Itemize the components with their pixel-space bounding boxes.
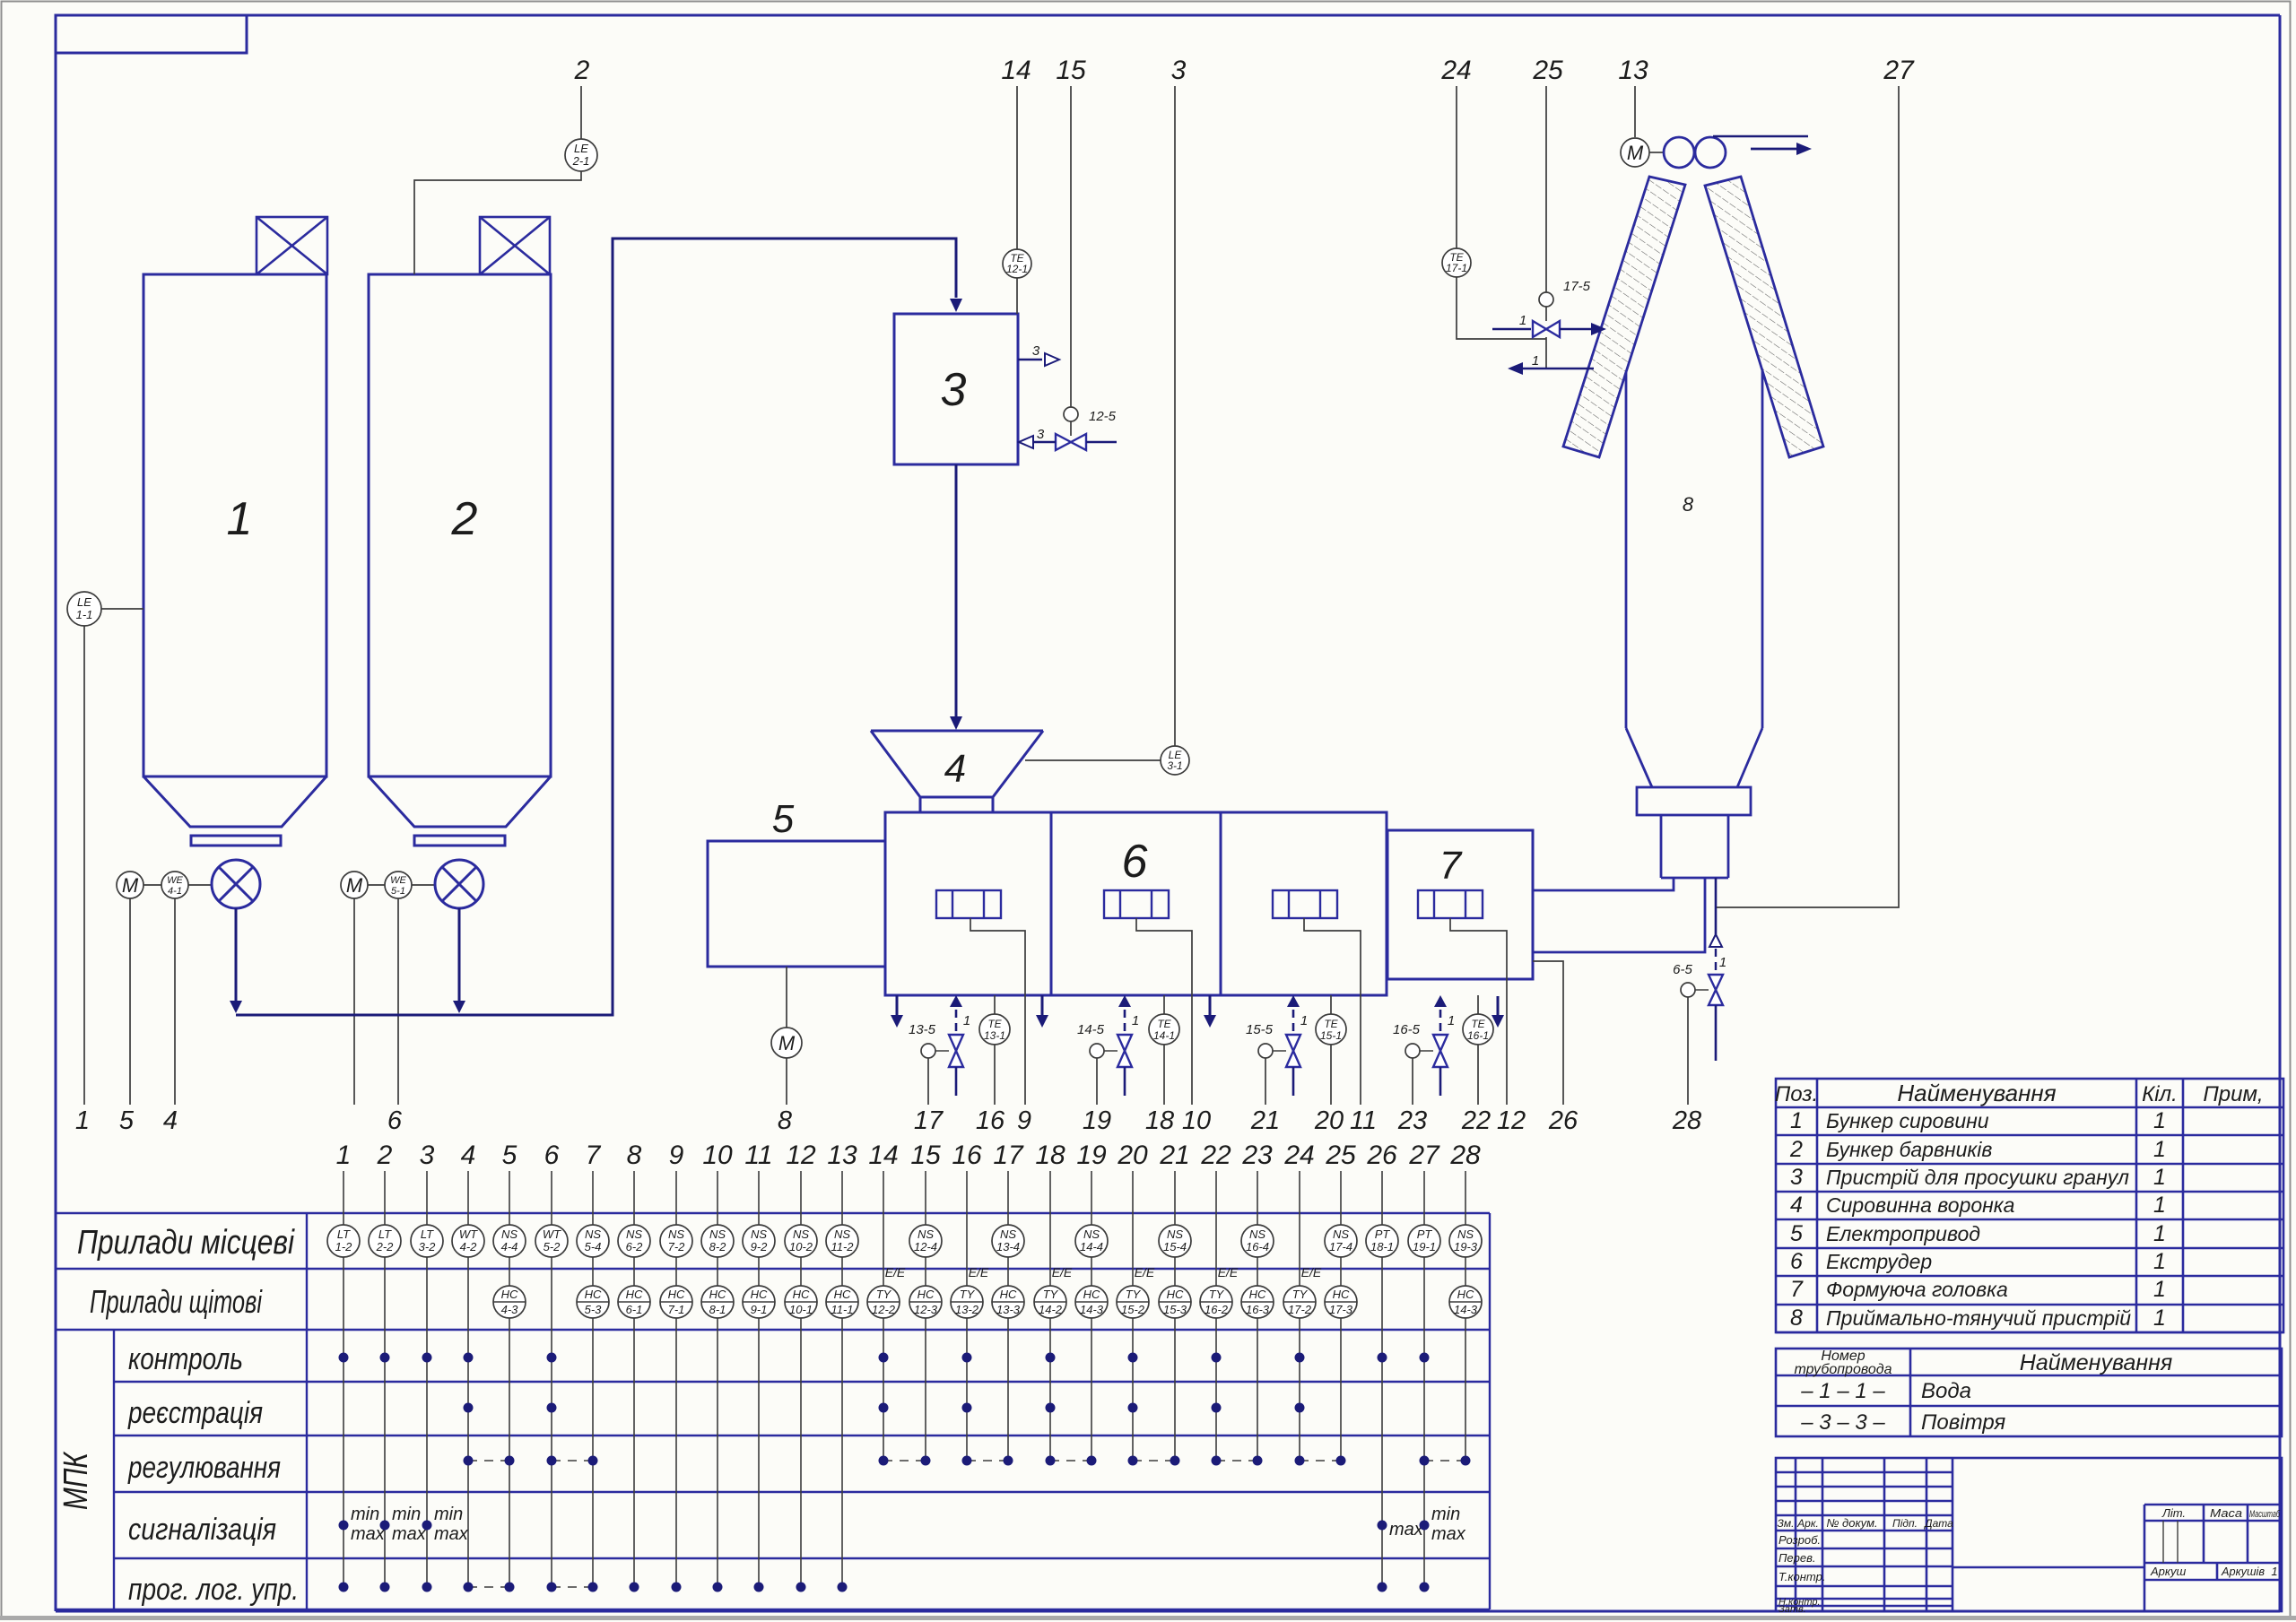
svg-text:15-2: 15-2: [1121, 1303, 1145, 1316]
svg-text:5: 5: [772, 797, 795, 841]
svg-text:6-5: 6-5: [1673, 962, 1692, 977]
svg-text:16-4: 16-4: [1246, 1240, 1269, 1253]
svg-text:NS: NS: [1167, 1227, 1183, 1241]
svg-text:Підп.: Підп.: [1892, 1517, 1918, 1530]
svg-text:TE: TE: [987, 1018, 1002, 1030]
svg-text:NS: NS: [709, 1227, 726, 1241]
svg-text:HC: HC: [1457, 1288, 1474, 1301]
svg-text:3-1: 3-1: [1167, 759, 1182, 772]
svg-text:19: 19: [1076, 1141, 1107, 1170]
svg-text:5: 5: [1790, 1221, 1803, 1246]
svg-text:7: 7: [1439, 844, 1463, 888]
svg-text:24: 24: [1440, 56, 1471, 85]
svg-text:17-5: 17-5: [1563, 279, 1591, 294]
svg-text:21: 21: [1250, 1106, 1280, 1135]
svg-text:4-1: 4-1: [168, 886, 182, 897]
svg-text:1: 1: [2153, 1249, 2166, 1274]
svg-text:7: 7: [1790, 1277, 1804, 1302]
svg-text:Зм.: Зм.: [1778, 1517, 1795, 1530]
svg-text:Вода: Вода: [1921, 1379, 1971, 1403]
svg-text:16-3: 16-3: [1246, 1303, 1270, 1316]
svg-text:2: 2: [451, 493, 478, 545]
svg-text:10-2: 10-2: [789, 1240, 813, 1253]
svg-text:16-1: 16-1: [1467, 1029, 1489, 1042]
svg-text:Приймально-тянучий пристрій: Приймально-тянучий пристрій: [1826, 1306, 2131, 1330]
svg-text:6-1: 6-1: [626, 1303, 643, 1316]
svg-text:NS: NS: [1457, 1227, 1474, 1241]
svg-text:PT: PT: [1417, 1227, 1433, 1241]
svg-text:NS: NS: [501, 1227, 517, 1241]
svg-text:8: 8: [778, 1106, 792, 1135]
svg-text:NS: NS: [668, 1227, 684, 1241]
svg-text:21: 21: [1159, 1141, 1189, 1170]
svg-text:1: 1: [1300, 1013, 1308, 1028]
svg-text:8: 8: [627, 1141, 642, 1170]
svg-text:Перев.: Перев.: [1779, 1551, 1816, 1565]
svg-text:TE: TE: [1471, 1018, 1485, 1030]
svg-text:WE: WE: [390, 875, 406, 886]
svg-text:4: 4: [1790, 1193, 1803, 1218]
svg-text:9: 9: [1017, 1106, 1031, 1135]
svg-text:13: 13: [827, 1141, 857, 1170]
svg-text:трубопровода: трубопровода: [1794, 1362, 1892, 1377]
svg-text:14: 14: [1001, 56, 1031, 85]
svg-text:1: 1: [2153, 1137, 2166, 1162]
svg-text:16-2: 16-2: [1205, 1303, 1229, 1316]
svg-text:M: M: [346, 874, 363, 897]
svg-text:6: 6: [387, 1106, 403, 1135]
svg-text:5: 5: [119, 1106, 135, 1135]
svg-text:M: M: [122, 874, 139, 897]
svg-text:3: 3: [420, 1141, 435, 1170]
svg-text:2-1: 2-1: [572, 154, 590, 168]
svg-text:HC: HC: [751, 1288, 768, 1301]
svg-text:3: 3: [941, 364, 967, 416]
svg-text:Прилади щітові: Прилади щітові: [90, 1283, 263, 1320]
svg-text:TY: TY: [1126, 1288, 1142, 1301]
svg-text:LT: LT: [337, 1227, 351, 1241]
svg-text:E/E: E/E: [1218, 1265, 1239, 1279]
svg-text:Електропривод: Електропривод: [1826, 1222, 1980, 1245]
svg-text:HC: HC: [1083, 1288, 1100, 1301]
svg-text:14-3: 14-3: [1454, 1303, 1478, 1316]
svg-text:HC: HC: [668, 1288, 685, 1301]
svg-text:NS: NS: [1083, 1227, 1100, 1241]
svg-text:4: 4: [461, 1141, 476, 1170]
svg-text:12-5: 12-5: [1089, 409, 1117, 424]
svg-text:1-1: 1-1: [76, 608, 93, 621]
svg-text:E/E: E/E: [1052, 1265, 1073, 1279]
svg-text:max: max: [351, 1524, 386, 1544]
svg-text:3: 3: [1032, 343, 1040, 359]
svg-text:TY: TY: [1292, 1288, 1309, 1301]
svg-text:3: 3: [1037, 427, 1045, 442]
svg-text:M: M: [1627, 142, 1644, 164]
svg-text:9: 9: [669, 1141, 684, 1170]
svg-text:2: 2: [1789, 1137, 1803, 1162]
svg-text:17-1: 17-1: [1446, 262, 1467, 274]
svg-text:10-1: 10-1: [789, 1303, 813, 1316]
svg-text:1: 1: [2153, 1277, 2166, 1302]
svg-text:25: 25: [1532, 56, 1563, 85]
svg-text:регулювання: регулювання: [127, 1451, 281, 1485]
svg-text:16-5: 16-5: [1393, 1022, 1421, 1037]
svg-text:12-3: 12-3: [914, 1303, 938, 1316]
svg-text:1: 1: [1532, 353, 1539, 369]
svg-text:2: 2: [377, 1141, 393, 1170]
svg-text:11-1: 11-1: [831, 1303, 853, 1316]
svg-text:Маса: Маса: [2210, 1506, 2242, 1520]
svg-text:19-1: 19-1: [1413, 1240, 1436, 1253]
svg-text:Літ.: Літ.: [2161, 1506, 2186, 1520]
svg-text:E/E: E/E: [1135, 1265, 1155, 1279]
svg-text:NS: NS: [834, 1227, 850, 1241]
svg-text:min: min: [434, 1505, 463, 1524]
svg-text:5-3: 5-3: [585, 1303, 603, 1316]
svg-text:max: max: [434, 1524, 469, 1544]
svg-text:7: 7: [586, 1141, 602, 1170]
svg-text:max: max: [1431, 1524, 1466, 1544]
svg-text:13-4: 13-4: [996, 1240, 1020, 1253]
svg-text:19: 19: [1083, 1106, 1111, 1135]
svg-text:26: 26: [1548, 1106, 1578, 1135]
svg-text:23: 23: [1397, 1106, 1427, 1135]
svg-text:HC: HC: [834, 1288, 851, 1301]
svg-text:1: 1: [2153, 1193, 2166, 1218]
svg-text:12: 12: [1497, 1106, 1526, 1135]
svg-text:17: 17: [993, 1141, 1024, 1170]
svg-text:5: 5: [502, 1141, 517, 1170]
svg-text:12-2: 12-2: [872, 1303, 896, 1316]
svg-text:3: 3: [1790, 1165, 1803, 1190]
svg-text:13-5: 13-5: [909, 1022, 936, 1037]
svg-text:17-2: 17-2: [1288, 1303, 1312, 1316]
svg-text:9-2: 9-2: [751, 1240, 769, 1253]
svg-text:Поз.: Поз.: [1775, 1082, 1818, 1106]
svg-text:1: 1: [1448, 1013, 1455, 1028]
svg-text:27: 27: [1883, 56, 1915, 85]
svg-text:4: 4: [163, 1106, 178, 1135]
svg-text:1: 1: [336, 1141, 352, 1170]
svg-text:Бункер барвників: Бункер барвників: [1826, 1138, 1992, 1161]
svg-text:Сировинна воронка: Сировинна воронка: [1826, 1193, 2014, 1217]
svg-text:реєстрація: реєстрація: [127, 1396, 263, 1430]
svg-text:Повітря: Повітря: [1921, 1410, 2005, 1435]
svg-text:18: 18: [1035, 1141, 1065, 1170]
svg-text:14: 14: [868, 1141, 898, 1170]
svg-text:22: 22: [1461, 1106, 1491, 1135]
svg-text:15-4: 15-4: [1163, 1240, 1187, 1253]
svg-text:20: 20: [1314, 1106, 1344, 1135]
svg-text:8: 8: [1790, 1305, 1803, 1331]
svg-text:min: min: [392, 1505, 421, 1524]
svg-text:HC: HC: [626, 1288, 643, 1301]
svg-text:13-2: 13-2: [955, 1303, 979, 1316]
svg-text:прог. лог. упр.: прог. лог. упр.: [128, 1573, 299, 1607]
svg-text:14-5: 14-5: [1077, 1022, 1105, 1037]
svg-text:14-4: 14-4: [1080, 1240, 1103, 1253]
svg-text:LT: LT: [421, 1227, 434, 1241]
svg-text:10: 10: [702, 1141, 733, 1170]
svg-text:NS: NS: [585, 1227, 601, 1241]
svg-text:11-2: 11-2: [831, 1240, 854, 1253]
svg-text:20: 20: [1117, 1141, 1148, 1170]
svg-text:TE: TE: [1324, 1018, 1338, 1030]
svg-text:Прилади місцеві: Прилади місцеві: [77, 1224, 295, 1262]
svg-text:4-3: 4-3: [501, 1303, 519, 1316]
svg-text:NS: NS: [1249, 1227, 1265, 1241]
svg-text:7-2: 7-2: [668, 1240, 686, 1253]
svg-text:HC: HC: [918, 1288, 935, 1301]
svg-text:2-2: 2-2: [376, 1240, 395, 1253]
svg-text:Аркуш: Аркуш: [2150, 1565, 2187, 1578]
svg-text:14-2: 14-2: [1039, 1303, 1063, 1316]
svg-text:NS: NS: [626, 1227, 642, 1241]
svg-text:22: 22: [1200, 1141, 1231, 1170]
svg-text:3-2: 3-2: [419, 1240, 437, 1253]
svg-text:WE: WE: [167, 875, 183, 886]
svg-text:8-2: 8-2: [709, 1240, 727, 1253]
svg-text:17-4: 17-4: [1329, 1240, 1352, 1253]
svg-text:28: 28: [1672, 1106, 1701, 1135]
svg-text:HC: HC: [1000, 1288, 1017, 1301]
svg-text:Пристрій для просушки гранул: Пристрій для просушки гранул: [1826, 1166, 2129, 1189]
svg-text:1: 1: [2153, 1305, 2166, 1331]
svg-text:23: 23: [1241, 1141, 1273, 1170]
svg-text:TY: TY: [876, 1288, 892, 1301]
svg-text:Екструдер: Екструдер: [1826, 1250, 1932, 1273]
svg-text:18-1: 18-1: [1370, 1240, 1394, 1253]
svg-text:Розроб.: Розроб.: [1779, 1533, 1821, 1547]
svg-text:1: 1: [1790, 1108, 1803, 1133]
svg-text:1: 1: [2271, 1565, 2277, 1578]
svg-text:PT: PT: [1375, 1227, 1391, 1241]
svg-text:1: 1: [2153, 1108, 2166, 1133]
svg-text:1: 1: [1719, 955, 1726, 970]
svg-text:8: 8: [1683, 493, 1694, 516]
svg-text:12-4: 12-4: [914, 1240, 937, 1253]
svg-text:NS: NS: [1000, 1227, 1016, 1241]
svg-text:HC: HC: [709, 1288, 726, 1301]
svg-text:LT: LT: [378, 1227, 392, 1241]
svg-text:TE: TE: [1157, 1018, 1171, 1030]
svg-text:1: 1: [963, 1013, 970, 1028]
svg-text:TY: TY: [1209, 1288, 1225, 1301]
svg-text:16: 16: [952, 1141, 982, 1170]
svg-text:LE: LE: [574, 142, 588, 155]
svg-text:12: 12: [786, 1141, 816, 1170]
svg-text:NS: NS: [793, 1227, 809, 1241]
svg-text:NS: NS: [751, 1227, 767, 1241]
svg-text:12-1: 12-1: [1006, 263, 1028, 275]
svg-text:Аркушів: Аркушів: [2221, 1565, 2265, 1578]
svg-text:11: 11: [744, 1141, 772, 1170]
svg-text:Т.контр.: Т.контр.: [1779, 1570, 1825, 1583]
svg-text:6: 6: [544, 1141, 560, 1170]
svg-text:27: 27: [1408, 1141, 1440, 1170]
svg-text:Найменування: Найменування: [2020, 1350, 2172, 1375]
svg-text:17: 17: [914, 1106, 944, 1135]
svg-text:Масштаб: Масштаб: [2249, 1509, 2281, 1520]
svg-text:МПК: МПК: [57, 1451, 95, 1510]
svg-text:15-1: 15-1: [1320, 1029, 1342, 1042]
svg-text:26: 26: [1366, 1141, 1397, 1170]
svg-text:18: 18: [1145, 1106, 1174, 1135]
svg-text:14-1: 14-1: [1153, 1029, 1175, 1042]
svg-text:HC: HC: [585, 1288, 602, 1301]
svg-text:Прим,: Прим,: [2203, 1082, 2263, 1106]
svg-text:24: 24: [1283, 1141, 1314, 1170]
svg-text:M: M: [778, 1032, 796, 1054]
svg-text:сигналізація: сигналізація: [128, 1513, 276, 1547]
svg-text:13-1: 13-1: [984, 1029, 1005, 1042]
svg-text:HC: HC: [1167, 1288, 1184, 1301]
svg-text:2: 2: [574, 56, 590, 85]
svg-text:– 1 – 1 –: – 1 – 1 –: [1800, 1379, 1885, 1403]
svg-text:6-2: 6-2: [626, 1240, 644, 1253]
svg-text:4-4: 4-4: [501, 1240, 518, 1253]
svg-text:16: 16: [976, 1106, 1005, 1135]
svg-text:max: max: [1389, 1520, 1424, 1540]
svg-text:28: 28: [1449, 1141, 1481, 1170]
svg-text:min: min: [351, 1505, 379, 1524]
svg-text:11: 11: [1350, 1106, 1377, 1135]
svg-text:6: 6: [1122, 836, 1148, 888]
svg-text:5-1: 5-1: [391, 886, 405, 897]
svg-text:Формуюча головка: Формуюча головка: [1826, 1278, 2008, 1301]
svg-text:5-2: 5-2: [544, 1240, 561, 1253]
svg-text:4-2: 4-2: [460, 1240, 478, 1253]
svg-text:1: 1: [227, 493, 253, 545]
svg-text:1: 1: [2153, 1221, 2166, 1246]
svg-text:14-3: 14-3: [1080, 1303, 1104, 1316]
svg-text:TY: TY: [960, 1288, 976, 1301]
svg-text:Кіл.: Кіл.: [2142, 1082, 2178, 1106]
svg-text:Найменування: Найменування: [1897, 1080, 2056, 1106]
svg-text:15-5: 15-5: [1246, 1022, 1274, 1037]
svg-text:Бункер сировини: Бункер сировини: [1826, 1109, 1989, 1132]
svg-text:контроль: контроль: [128, 1342, 243, 1376]
svg-text:1: 1: [75, 1106, 90, 1135]
svg-text:3: 3: [1171, 56, 1187, 85]
svg-text:1: 1: [1519, 313, 1526, 328]
svg-text:1: 1: [2153, 1165, 2166, 1190]
svg-text:15: 15: [910, 1141, 941, 1170]
svg-text:25: 25: [1325, 1141, 1356, 1170]
svg-text:E/E: E/E: [1301, 1265, 1322, 1279]
svg-text:min: min: [1431, 1505, 1460, 1524]
svg-text:HC: HC: [501, 1288, 518, 1301]
svg-text:19-3: 19-3: [1454, 1240, 1478, 1253]
svg-text:№ докум.: № докум.: [1826, 1516, 1877, 1530]
svg-text:WT: WT: [459, 1227, 478, 1241]
svg-text:1-2: 1-2: [335, 1240, 353, 1253]
svg-text:NS: NS: [918, 1227, 934, 1241]
svg-text:10: 10: [1182, 1106, 1211, 1135]
svg-text:WT: WT: [543, 1227, 561, 1241]
svg-text:9-1: 9-1: [751, 1303, 768, 1316]
svg-text:LE: LE: [77, 595, 91, 609]
svg-text:TY: TY: [1043, 1288, 1059, 1301]
svg-text:15: 15: [1056, 56, 1086, 85]
svg-text:6: 6: [1790, 1249, 1803, 1274]
svg-text:– 3 – 3 –: – 3 – 3 –: [1800, 1410, 1885, 1435]
svg-text:1: 1: [1132, 1013, 1139, 1028]
svg-text:HC: HC: [793, 1288, 810, 1301]
svg-text:13: 13: [1618, 56, 1648, 85]
svg-text:4: 4: [944, 747, 966, 791]
svg-text:Дата: Дата: [1923, 1517, 1953, 1530]
svg-text:E/E: E/E: [885, 1265, 906, 1279]
svg-text:15-3: 15-3: [1163, 1303, 1187, 1316]
svg-text:13-3: 13-3: [996, 1303, 1021, 1316]
svg-text:Арк.: Арк.: [1796, 1517, 1819, 1530]
svg-text:8-1: 8-1: [709, 1303, 726, 1316]
svg-text:17-3: 17-3: [1329, 1303, 1353, 1316]
svg-text:E/E: E/E: [969, 1265, 989, 1279]
svg-text:5-4: 5-4: [585, 1240, 602, 1253]
svg-text:HC: HC: [1249, 1288, 1266, 1301]
svg-text:max: max: [392, 1524, 427, 1544]
svg-text:NS: NS: [1333, 1227, 1349, 1241]
svg-text:7-1: 7-1: [668, 1303, 685, 1316]
svg-text:Затв.: Затв.: [1779, 1604, 1806, 1615]
svg-text:HC: HC: [1333, 1288, 1350, 1301]
